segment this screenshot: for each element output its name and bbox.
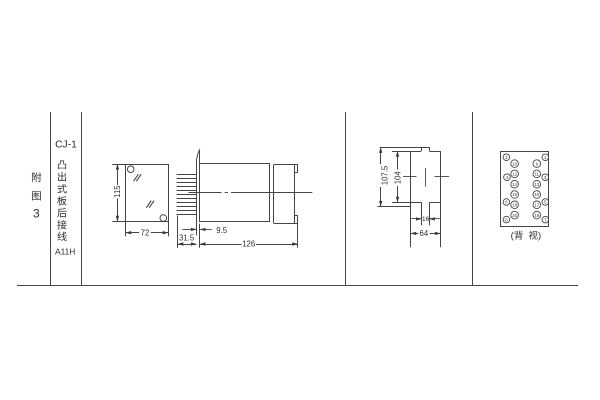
svg-text:A11H: A11H [55, 246, 75, 256]
svg-text:): ) [538, 231, 541, 242]
svg-text:12: 12 [512, 172, 517, 177]
svg-text:20: 20 [512, 213, 517, 218]
svg-text:19: 19 [534, 213, 539, 218]
svg-text:107.5: 107.5 [380, 165, 389, 185]
svg-text:17: 17 [534, 203, 539, 208]
svg-text:CJ-1: CJ-1 [55, 140, 77, 151]
svg-text:10: 10 [512, 161, 517, 166]
svg-text:11: 11 [535, 172, 540, 177]
svg-text:9.5: 9.5 [216, 226, 228, 235]
svg-text:31.5: 31.5 [179, 233, 195, 242]
svg-text:15: 15 [534, 192, 539, 197]
svg-text:16: 16 [422, 216, 430, 223]
svg-text:64: 64 [420, 229, 429, 238]
svg-text:72: 72 [141, 228, 150, 237]
svg-text:18: 18 [512, 203, 517, 208]
svg-text:3: 3 [33, 207, 40, 221]
svg-text:13: 13 [534, 182, 539, 187]
svg-text:14: 14 [512, 182, 517, 187]
svg-text:115: 115 [113, 185, 122, 198]
svg-text:104: 104 [394, 171, 403, 185]
svg-text:126: 126 [242, 240, 255, 249]
svg-text:16: 16 [512, 192, 517, 197]
